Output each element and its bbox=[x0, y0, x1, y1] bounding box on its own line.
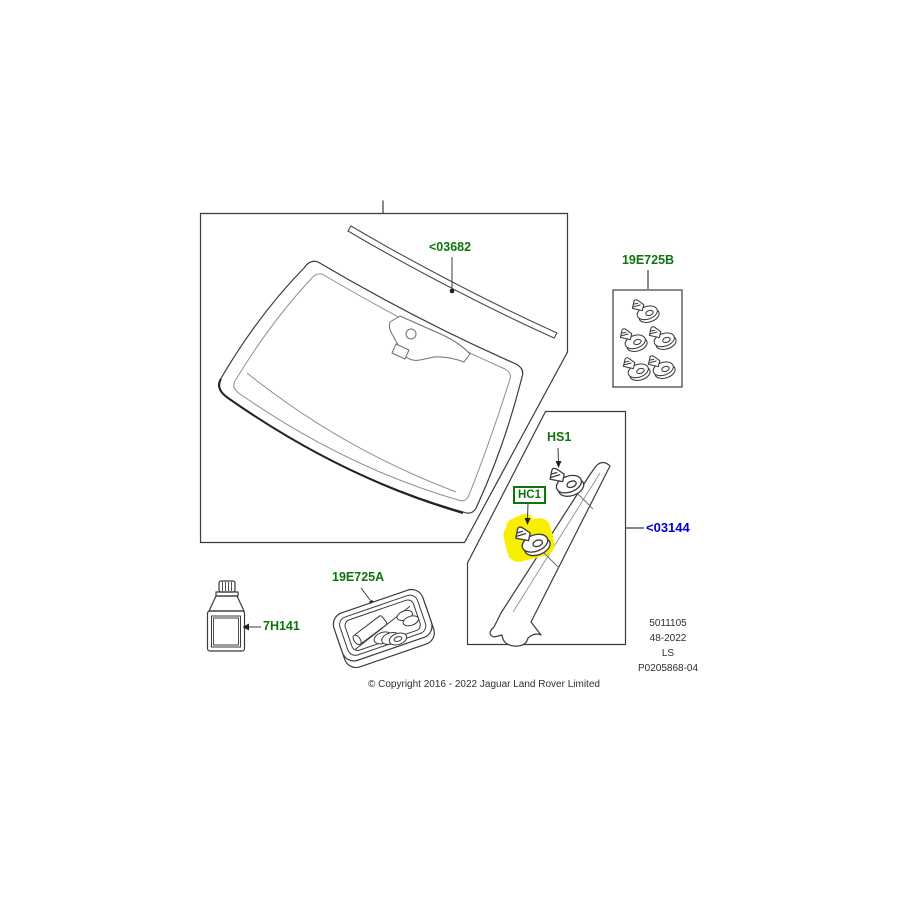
callout-clip-hc1[interactable]: HC1 bbox=[513, 486, 546, 504]
plate-doc-number: 5011105 bbox=[613, 616, 723, 631]
primer-bottle-drawing bbox=[208, 581, 262, 651]
callout-fitting-kit[interactable]: 19E725A bbox=[332, 571, 384, 584]
callout-windscreen-moulding[interactable]: <03682 bbox=[429, 241, 471, 254]
clip-pack-clips bbox=[618, 294, 678, 384]
plate-drawing-number: P0205868-04 bbox=[613, 661, 723, 676]
callout-screw-hs1[interactable]: HS1 bbox=[547, 431, 571, 444]
callout-primer-bottle[interactable]: 7H141 bbox=[263, 620, 300, 633]
windscreen-glass-drawing bbox=[219, 261, 523, 513]
callout-clip-pack[interactable]: 19E725B bbox=[608, 254, 688, 267]
parts-diagram-page: <03682 19E725B HS1 HC1 <03144 7H141 19E7… bbox=[0, 0, 900, 900]
glazing-kit-tray-drawing bbox=[330, 586, 437, 670]
hc1-label-text: HC1 bbox=[518, 489, 541, 501]
diagram-line-art bbox=[0, 0, 900, 900]
plate-info-block: 5011105 48-2022 LS P0205868-04 bbox=[613, 616, 723, 676]
plate-date-code: 48-2022 bbox=[613, 631, 723, 646]
copyright-line: © Copyright 2016 - 2022 Jaguar Land Rove… bbox=[368, 677, 628, 689]
plate-market-code: LS bbox=[613, 646, 723, 661]
callout-a-pillar-trim[interactable]: <03144 bbox=[646, 521, 690, 534]
